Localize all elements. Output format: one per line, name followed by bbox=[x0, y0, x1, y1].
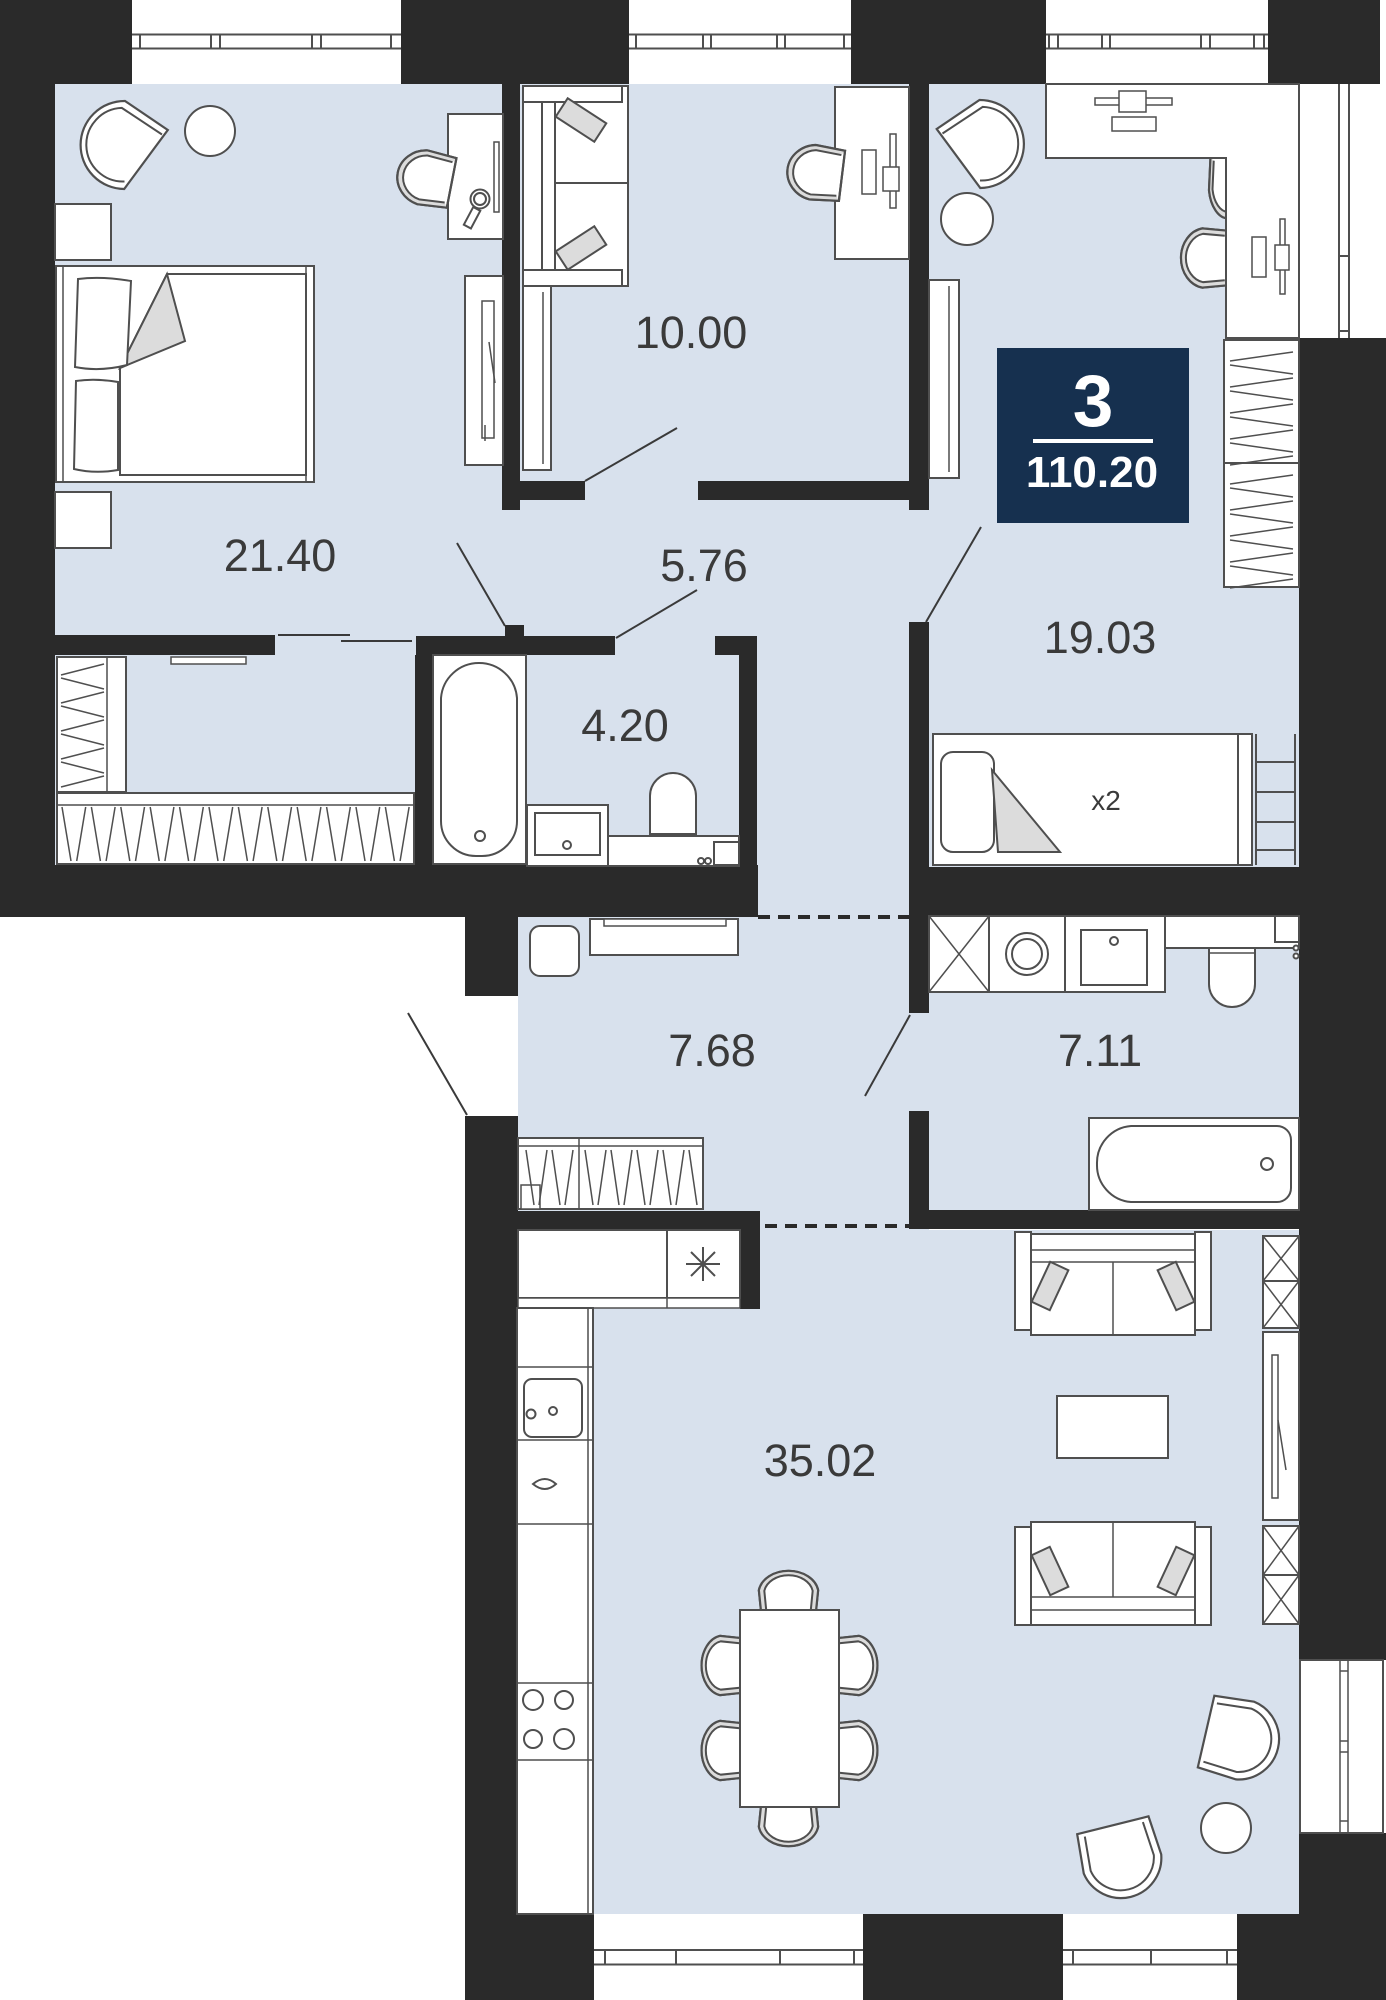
svg-text:21.40: 21.40 bbox=[224, 530, 337, 581]
svg-text:5.76: 5.76 bbox=[660, 540, 748, 591]
svg-text:x2: x2 bbox=[1091, 785, 1121, 816]
svg-text:4.20: 4.20 bbox=[581, 700, 669, 751]
svg-text:19.03: 19.03 bbox=[1044, 612, 1157, 663]
svg-text:7.68: 7.68 bbox=[668, 1025, 756, 1076]
svg-text:3: 3 bbox=[1073, 361, 1114, 442]
svg-text:35.02: 35.02 bbox=[764, 1435, 877, 1486]
svg-text:7.11: 7.11 bbox=[1058, 1025, 1142, 1076]
svg-text:110.20: 110.20 bbox=[1026, 448, 1158, 497]
svg-text:10.00: 10.00 bbox=[635, 307, 748, 358]
